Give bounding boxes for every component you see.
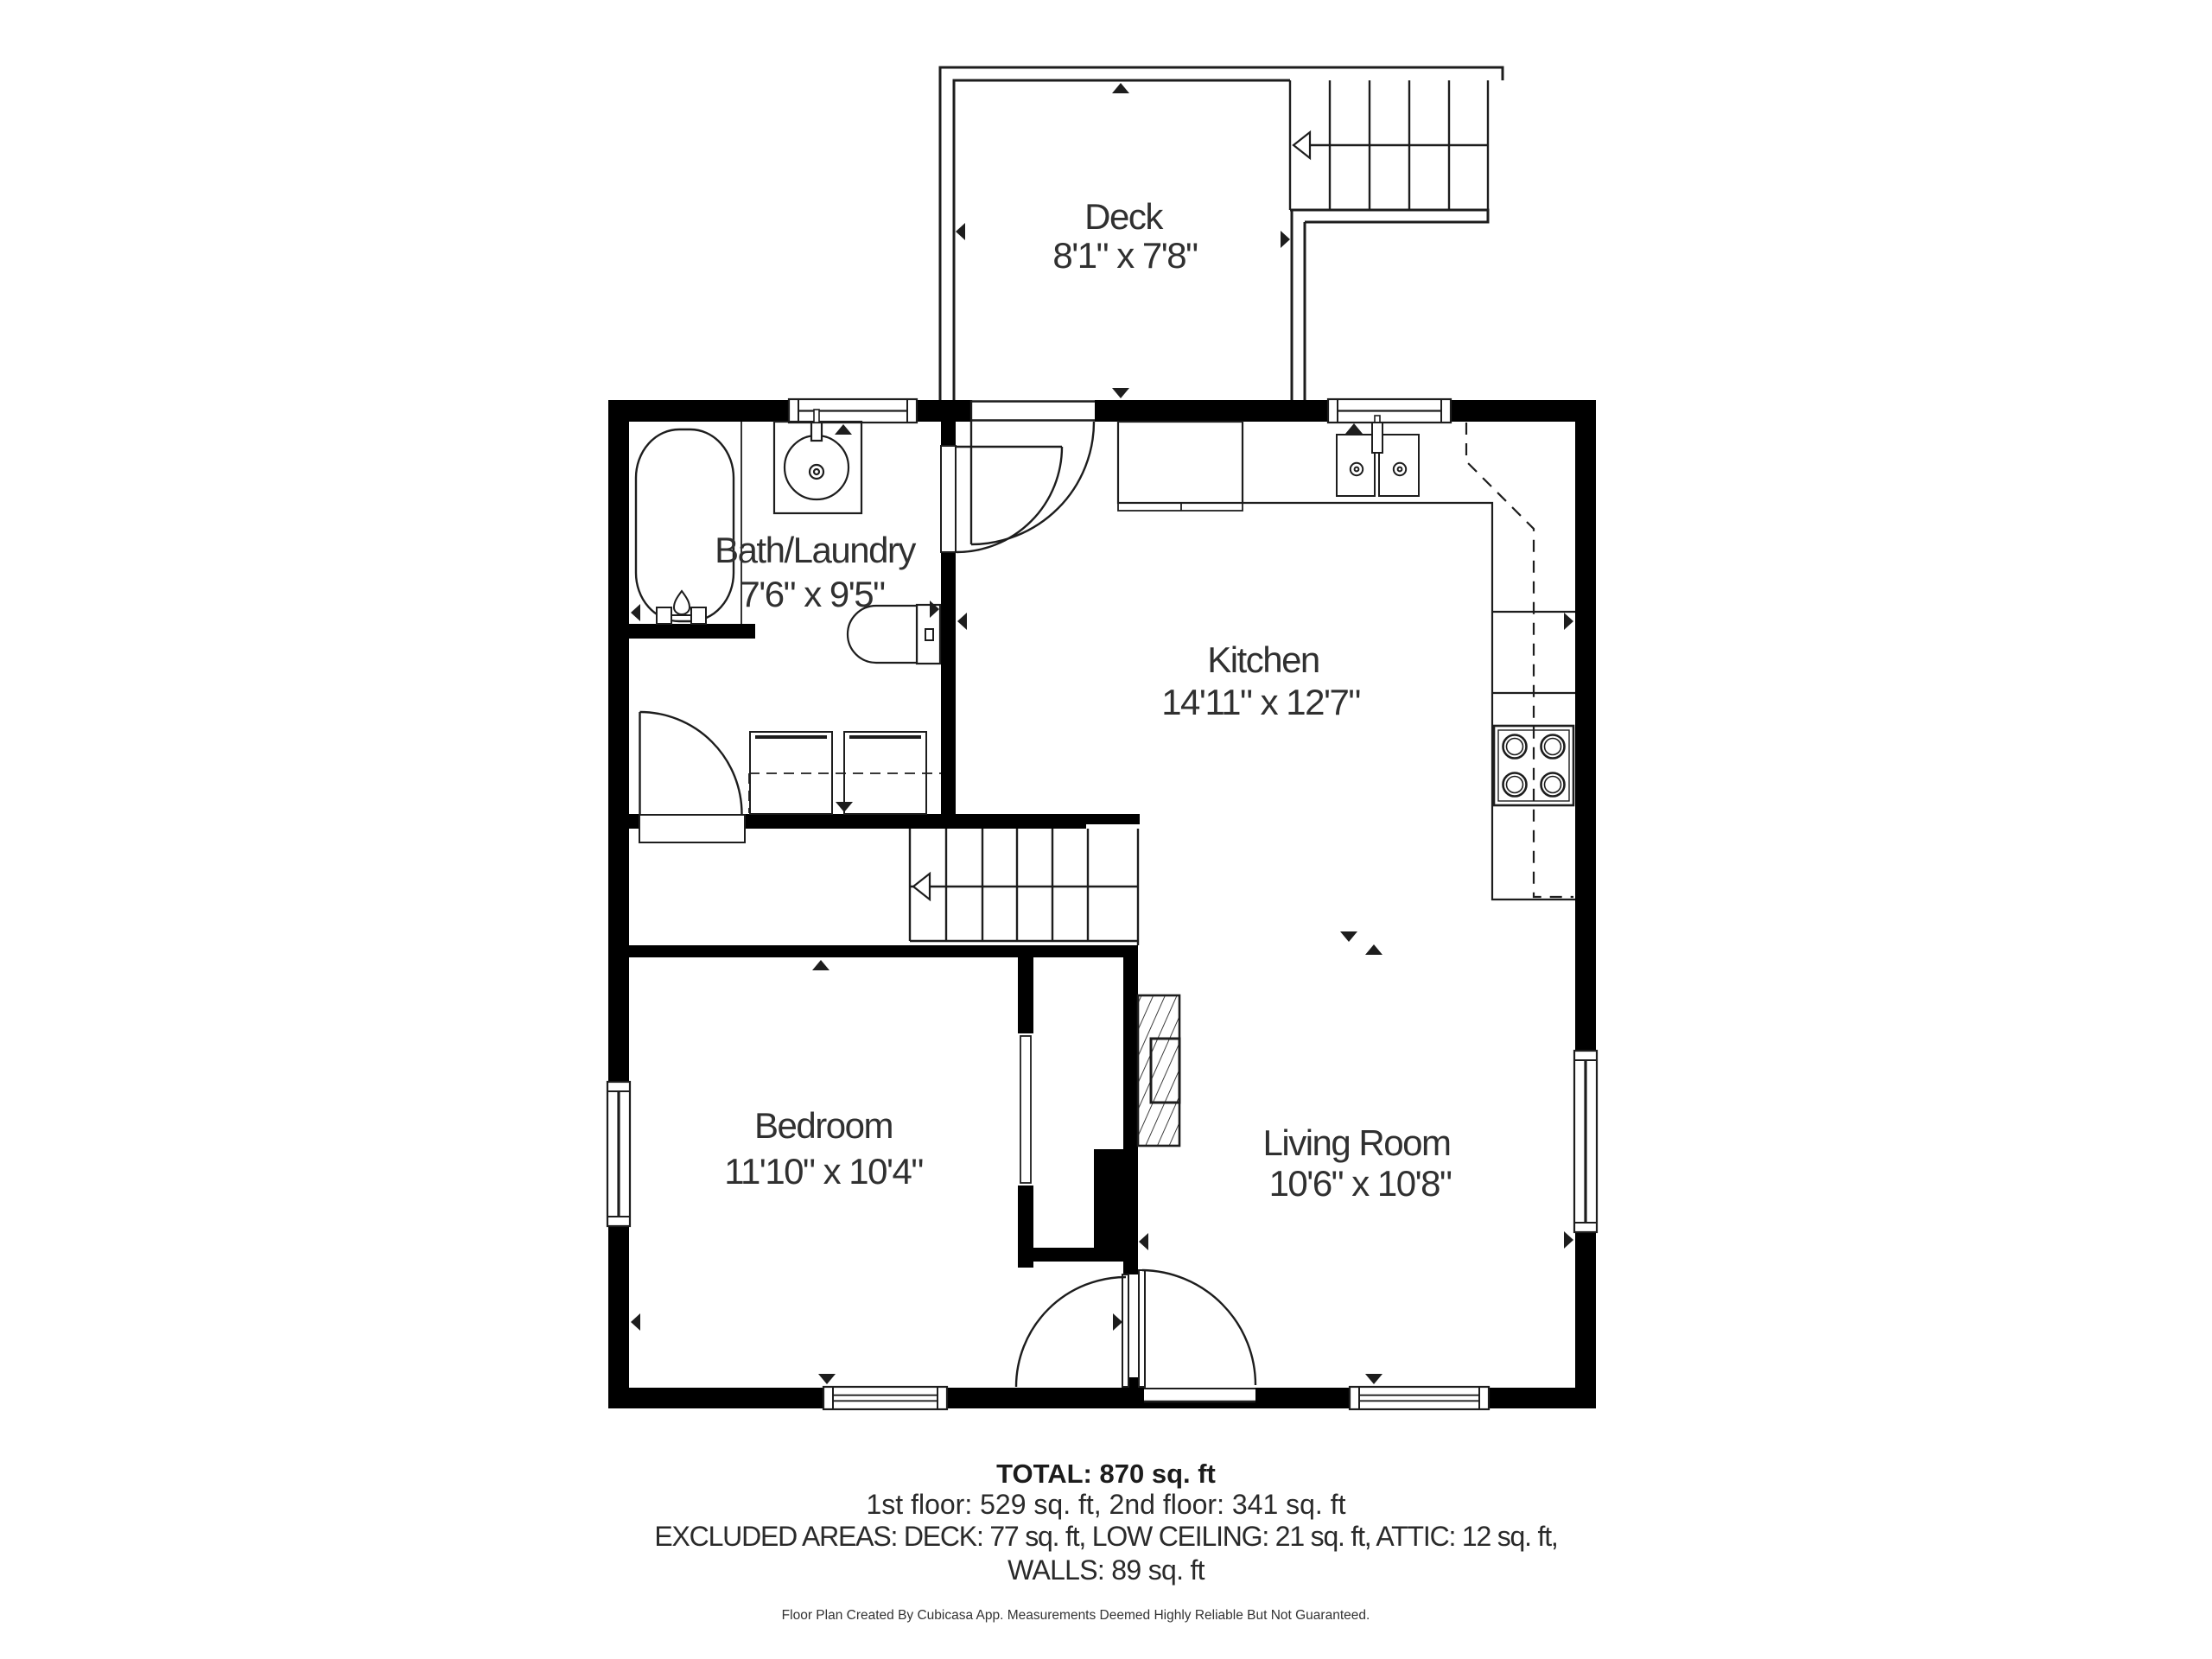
svg-text:Living Room: Living Room: [1263, 1122, 1451, 1163]
svg-text:1st floor: 529 sq. ft, 2nd flo: 1st floor: 529 sq. ft, 2nd floor: 341 sq…: [867, 1489, 1346, 1520]
svg-text:WALLS: 89 sq. ft: WALLS: 89 sq. ft: [1007, 1554, 1205, 1586]
svg-text:Floor Plan Created By Cubicasa: Floor Plan Created By Cubicasa App. Meas…: [782, 1608, 1370, 1623]
svg-text:Deck: Deck: [1084, 196, 1164, 237]
svg-text:Kitchen: Kitchen: [1207, 639, 1319, 680]
svg-text:Bath/Laundry: Bath/Laundry: [715, 530, 916, 570]
svg-text:11'10" x 10'4": 11'10" x 10'4": [724, 1151, 923, 1192]
svg-text:10'6" x 10'8": 10'6" x 10'8": [1269, 1163, 1452, 1204]
svg-text:EXCLUDED AREAS: DECK: 77 sq. f: EXCLUDED AREAS: DECK: 77 sq. ft, LOW CEI…: [654, 1521, 1557, 1552]
svg-text:TOTAL: 870 sq. ft: TOTAL: 870 sq. ft: [996, 1459, 1216, 1489]
svg-text:8'1" x 7'8": 8'1" x 7'8": [1052, 235, 1198, 276]
svg-text:Bedroom: Bedroom: [754, 1105, 893, 1146]
svg-text:7'6" x 9'5": 7'6" x 9'5": [740, 574, 885, 614]
svg-text:14'11" x 12'7": 14'11" x 12'7": [1161, 682, 1360, 722]
